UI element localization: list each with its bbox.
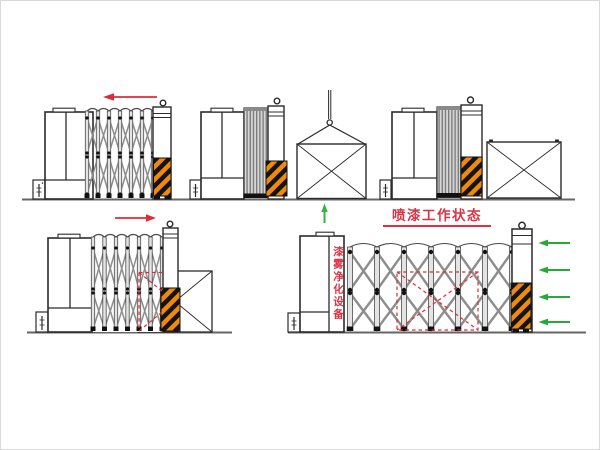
red-arrow-right-icon	[115, 214, 156, 222]
folded-booth-pack	[244, 108, 269, 198]
green-arrow-left-icon	[539, 294, 571, 301]
spray-state-title: 喷漆工作状态	[383, 209, 491, 227]
booth-lattice	[85, 109, 156, 199]
hook-icon	[167, 221, 173, 227]
folded-booth-pack	[437, 107, 462, 198]
green-arrow-left-icon	[539, 267, 571, 274]
workpiece-crate	[487, 140, 561, 199]
red-arrow-left-icon	[103, 93, 157, 101]
control-box	[33, 180, 45, 199]
machine-cabinet	[392, 108, 437, 199]
hook-icon	[468, 97, 474, 103]
hook-icon	[274, 98, 280, 104]
hazard-stripe-block	[266, 161, 287, 196]
machine-cabinet	[201, 108, 244, 199]
diagram-page: 喷漆工作状态 漆雾净化设备	[0, 0, 600, 450]
hazard-stripe-block	[511, 283, 531, 329]
figure-booth-folded-lifting	[190, 90, 366, 199]
green-arrow-up-icon	[321, 204, 327, 224]
hook-icon	[519, 222, 525, 228]
green-arrow-left-icons	[539, 240, 571, 326]
hazard-stripe-block	[461, 157, 482, 196]
green-arrow-left-icon	[539, 319, 571, 326]
workpiece-crate	[297, 144, 366, 199]
booth-lattice	[347, 244, 516, 332]
figure-booth-retracting	[33, 93, 171, 199]
machine-cabinet	[48, 234, 92, 332]
hazard-stripe-block	[154, 158, 172, 196]
diagram-canvas	[0, 0, 600, 450]
figure-booth-folded-placed	[380, 97, 561, 199]
crane-hook-icon	[298, 90, 365, 144]
purifier-equipment-label: 漆雾净化设备	[330, 246, 345, 328]
control-box	[36, 312, 48, 332]
figure-booth-extending	[36, 214, 212, 332]
hook-icon	[160, 100, 166, 106]
green-arrow-left-icon	[539, 240, 571, 247]
hazard-stripe-block	[161, 288, 180, 331]
control-box	[288, 313, 300, 332]
control-box	[190, 180, 201, 199]
control-box	[380, 180, 391, 199]
